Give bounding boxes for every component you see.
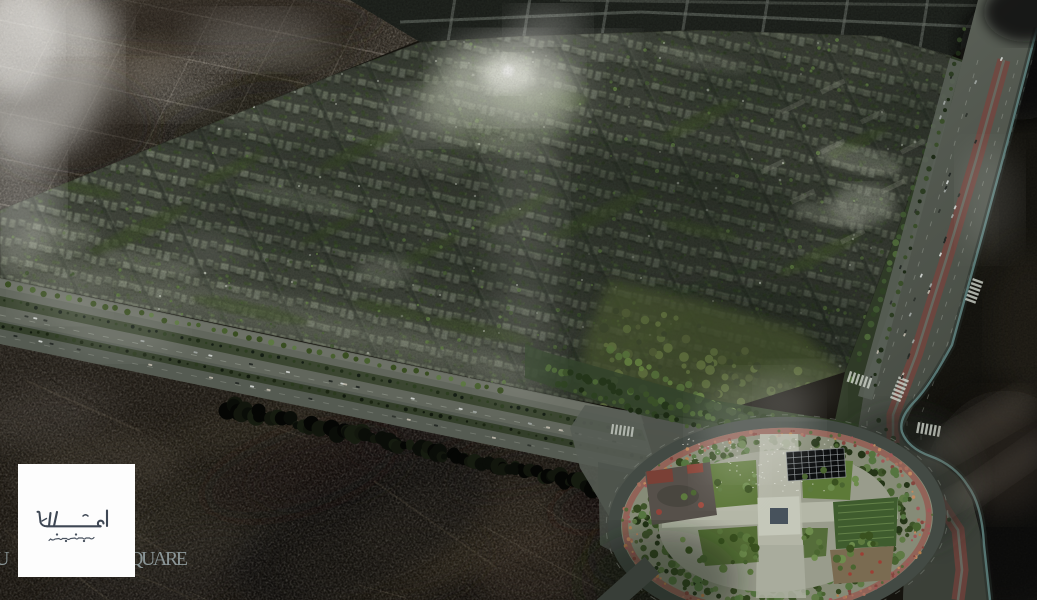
svg-text:QUARE: QUARE xyxy=(129,548,188,570)
svg-text:U: U xyxy=(0,548,10,570)
